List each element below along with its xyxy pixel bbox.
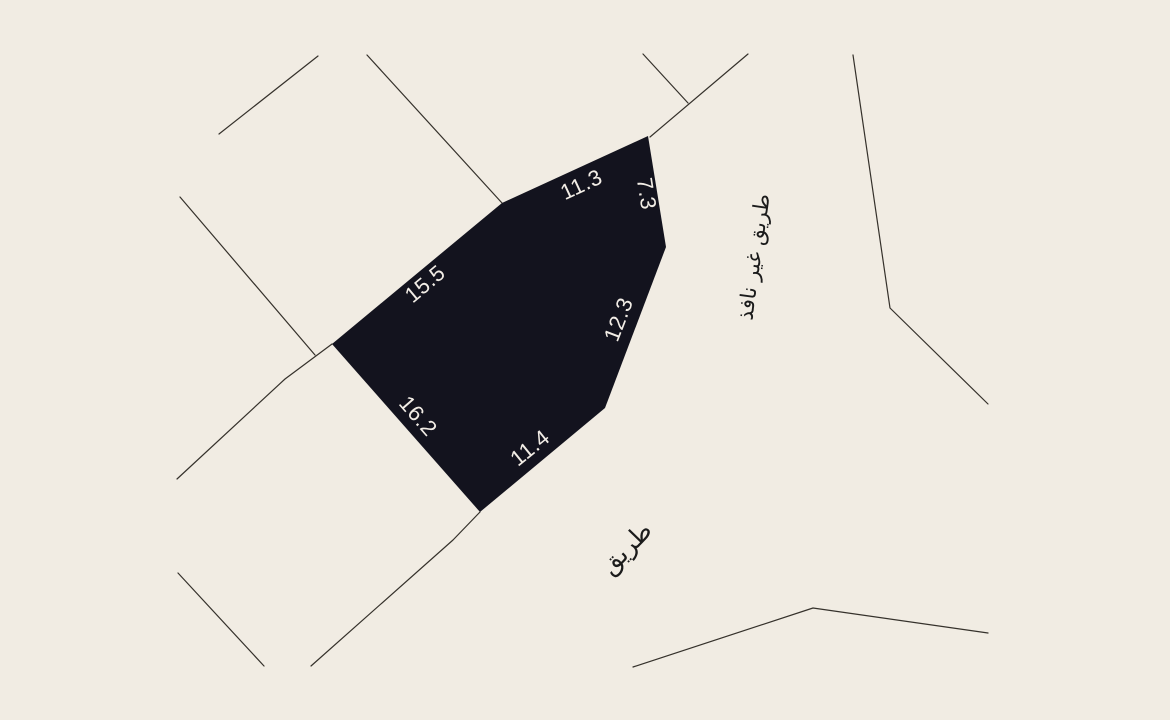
boundary-line-3 bbox=[180, 197, 315, 355]
boundary-line-5 bbox=[311, 512, 480, 666]
boundary-line-4 bbox=[177, 344, 332, 479]
boundary-line-1 bbox=[219, 56, 318, 134]
dimension-label: 7.3 bbox=[632, 176, 662, 212]
boundary-line-10 bbox=[643, 54, 688, 103]
boundary-line-7 bbox=[853, 55, 988, 404]
boundary-line-6 bbox=[178, 573, 264, 666]
cadastral-map: 11.37.312.315.516.211.4طريق غير نافذطريق bbox=[0, 0, 1170, 720]
road-label: طريق bbox=[594, 516, 658, 580]
road-label: طريق غير نافذ bbox=[733, 192, 774, 321]
boundary-line-2 bbox=[367, 55, 502, 203]
cadastral-map-canvas: 11.37.312.315.516.211.4طريق غير نافذطريق bbox=[0, 0, 1170, 720]
boundary-line-8 bbox=[633, 608, 988, 667]
boundary-line-9 bbox=[650, 54, 748, 137]
